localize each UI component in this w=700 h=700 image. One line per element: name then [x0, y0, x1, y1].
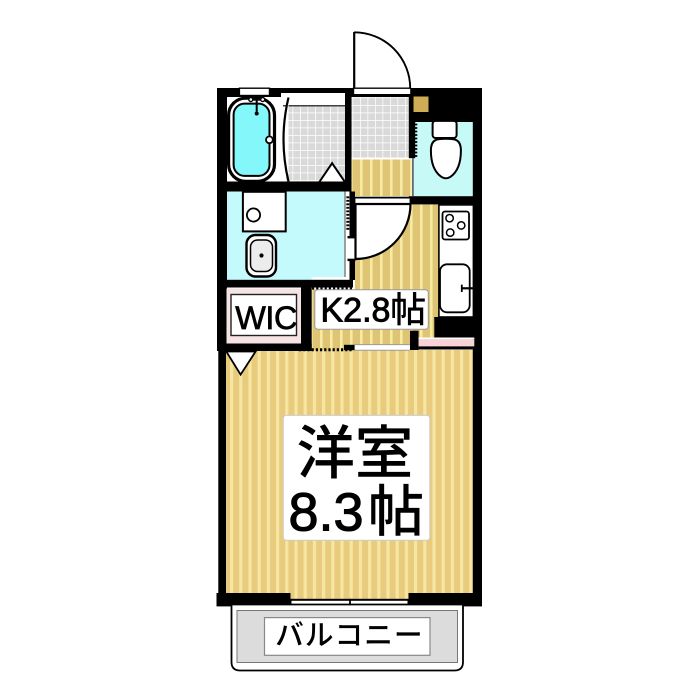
- svg-text:K2.8: K2.8: [321, 291, 391, 329]
- svg-text:8.3: 8.3: [289, 483, 364, 543]
- svg-text:WIC: WIC: [235, 300, 297, 336]
